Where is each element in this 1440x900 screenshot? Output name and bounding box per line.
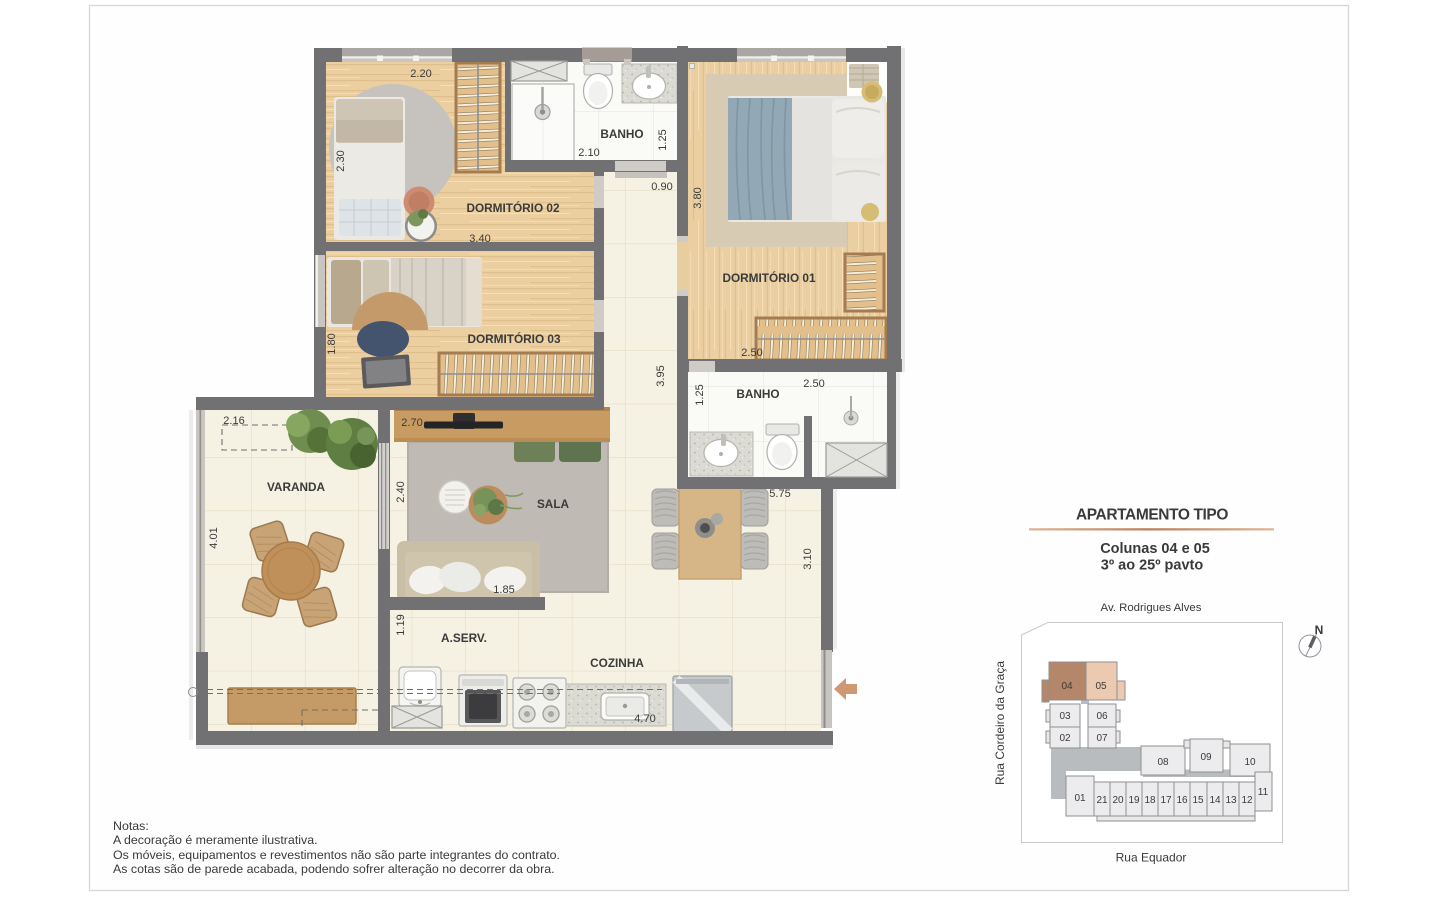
svg-text:Notas:: Notas: [113,819,149,833]
svg-text:4.70: 4.70 [634,713,655,725]
svg-text:4.01: 4.01 [208,527,220,548]
svg-text:COZINHA: COZINHA [590,656,644,670]
svg-text:16: 16 [1176,795,1188,806]
svg-text:2.50: 2.50 [741,347,762,359]
svg-text:DORMITÓRIO 02: DORMITÓRIO 02 [466,201,560,215]
svg-text:Colunas 04 e 05: Colunas 04 e 05 [1100,541,1210,557]
svg-text:APARTAMENTO TIPO: APARTAMENTO TIPO [1076,507,1228,524]
svg-text:VARANDA: VARANDA [267,480,326,494]
svg-text:06: 06 [1096,711,1108,722]
svg-text:05: 05 [1095,681,1107,692]
svg-text:A.SERV.: A.SERV. [441,631,487,645]
svg-text:N: N [1315,623,1324,637]
svg-text:18: 18 [1144,795,1156,806]
svg-text:DORMITÓRIO 01: DORMITÓRIO 01 [722,271,816,285]
svg-text:3.40: 3.40 [469,233,490,245]
svg-text:3.80: 3.80 [692,187,704,208]
svg-text:2.30: 2.30 [335,150,347,171]
svg-text:Os móveis, equipamentos e reve: Os móveis, equipamentos e revestimentos … [113,848,560,862]
svg-text:15: 15 [1192,795,1204,806]
svg-text:01: 01 [1074,793,1086,804]
svg-text:Rua Cordeiro da Graça: Rua Cordeiro da Graça [993,661,1007,785]
svg-text:2.20: 2.20 [410,68,431,80]
svg-text:21: 21 [1096,795,1108,806]
svg-text:12: 12 [1241,795,1253,806]
svg-text:11: 11 [1258,787,1269,798]
svg-text:3.10: 3.10 [802,548,814,569]
svg-text:Av. Rodrigues Alves: Av. Rodrigues Alves [1101,602,1202,614]
svg-text:0.90: 0.90 [651,181,672,193]
svg-text:07: 07 [1096,733,1108,744]
svg-text:19: 19 [1128,795,1140,806]
svg-text:A decoração é meramente ilustr: A decoração é meramente ilustrativa. [113,833,318,847]
svg-text:SALA: SALA [537,497,570,511]
svg-text:DORMITÓRIO 03: DORMITÓRIO 03 [467,332,561,346]
svg-text:2.50: 2.50 [803,378,824,390]
svg-text:14: 14 [1209,795,1221,806]
svg-text:2.10: 2.10 [578,147,599,159]
svg-text:As cotas são de parede acabada: As cotas são de parede acabada, podendo … [113,862,555,876]
svg-text:09: 09 [1200,752,1212,763]
svg-text:3º ao 25º pavto: 3º ao 25º pavto [1101,558,1204,574]
svg-text:3.95: 3.95 [655,365,667,386]
svg-text:04: 04 [1061,681,1073,692]
svg-text:Rua Equador: Rua Equador [1116,851,1187,865]
svg-text:BANHO: BANHO [600,127,643,141]
svg-text:1.19: 1.19 [395,614,407,635]
svg-text:2.16: 2.16 [223,415,244,427]
svg-text:2.70: 2.70 [401,417,422,429]
svg-text:1.25: 1.25 [657,129,669,150]
svg-text:1.25: 1.25 [694,384,706,405]
svg-text:2.40: 2.40 [395,481,407,502]
svg-text:02: 02 [1059,733,1071,744]
svg-text:1.80: 1.80 [326,333,338,354]
svg-text:03: 03 [1059,711,1071,722]
svg-text:17: 17 [1160,795,1172,806]
svg-text:5.75: 5.75 [769,488,790,500]
svg-text:10: 10 [1244,757,1256,768]
svg-text:BANHO: BANHO [736,387,779,401]
svg-text:20: 20 [1112,795,1124,806]
svg-text:08: 08 [1157,757,1169,768]
svg-text:1.85: 1.85 [493,584,514,596]
svg-text:13: 13 [1225,795,1237,806]
